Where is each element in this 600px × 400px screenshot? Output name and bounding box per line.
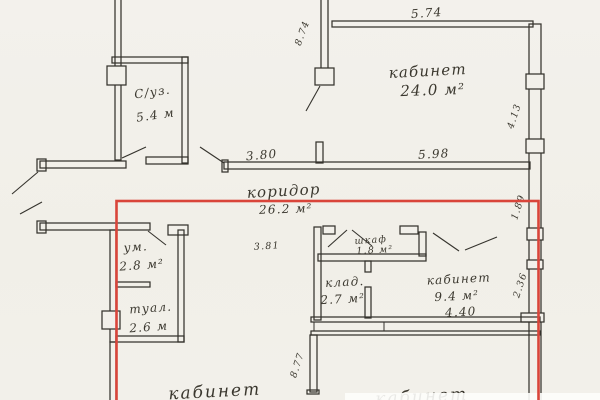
wall — [110, 342, 116, 400]
floor-plan-svg: 5.74 8.74 кабинет 24.0 м² 4.13 3.80 5.98… — [0, 0, 600, 400]
room-washroom-area: 2.8 м² — [118, 256, 165, 273]
dim-right-window: 4.13 — [505, 102, 524, 131]
labels: 5.74 8.74 кабинет 24.0 м² 4.13 3.80 5.98… — [118, 5, 530, 400]
wall — [314, 322, 384, 331]
wall — [40, 223, 150, 230]
dim-corridor-left: 3.80 — [245, 147, 278, 164]
dim-washroom-width: 3.81 — [253, 240, 280, 253]
wall — [116, 336, 184, 342]
scan-artifact-strip — [345, 393, 600, 400]
wall — [365, 261, 371, 272]
dim-office-mid-width: 4.40 — [444, 304, 477, 320]
dim-right-lower: 2.36 — [511, 271, 530, 300]
room-storage-name: клад. — [325, 274, 365, 290]
dim-left-height: 8.74 — [293, 19, 312, 47]
room-suz-name: С/уз. — [133, 83, 171, 102]
door-post — [400, 226, 418, 234]
window-box — [107, 66, 126, 85]
wall — [332, 21, 533, 27]
door-swing — [306, 86, 320, 111]
wall — [116, 282, 150, 287]
room-office-top-name: кабинет — [388, 60, 467, 82]
room-corridor-area: 26.2 м² — [258, 201, 313, 217]
door-swing — [20, 202, 42, 214]
wall — [310, 335, 317, 392]
window-box — [315, 68, 334, 85]
window-box — [527, 260, 543, 269]
window-box — [526, 74, 544, 89]
room-toilet-area: 2.6 м — [128, 319, 169, 336]
wall — [182, 57, 188, 163]
room-corridor-name: коридор — [246, 180, 321, 202]
wall — [311, 317, 540, 322]
room-office-mid-area: 9.4 м² — [434, 288, 480, 304]
room-office-top-area: 24.0 м² — [399, 80, 466, 100]
wall — [419, 232, 426, 256]
room-office-mid-name: кабинет — [426, 270, 491, 287]
door-swing — [200, 147, 224, 163]
room-suz-area: 5.4 м — [135, 105, 175, 124]
room-storage-area: 2.7 м² — [319, 291, 366, 307]
dim-mid-wall-height: 8.77 — [288, 351, 306, 379]
wall — [316, 142, 323, 163]
wall — [112, 57, 188, 63]
door-swing — [148, 231, 166, 245]
window-box — [526, 139, 544, 153]
window-box — [527, 228, 543, 240]
door-post — [323, 226, 335, 234]
wall — [321, 0, 328, 69]
dim-top-width: 5.74 — [411, 5, 443, 21]
wall — [178, 230, 184, 342]
floor-plan-scan: 5.74 8.74 кабинет 24.0 м² 4.13 3.80 5.98… — [0, 0, 600, 400]
wall — [311, 331, 540, 335]
room-wardrobe-area: 1.8 м² — [356, 244, 394, 257]
wall — [365, 287, 371, 318]
wall — [40, 161, 126, 168]
room-toilet-name: туал. — [129, 300, 173, 317]
wall — [224, 162, 530, 169]
room-office-bottom-left-name: кабинет — [168, 380, 262, 400]
dim-right-mid: 1.89 — [509, 193, 527, 221]
dim-corridor-right: 5.98 — [418, 146, 450, 162]
room-washroom-name: ум. — [122, 239, 148, 255]
door-swing — [122, 147, 146, 158]
door-swing — [12, 172, 38, 194]
door-swing — [465, 237, 497, 250]
door-swing — [433, 233, 459, 251]
